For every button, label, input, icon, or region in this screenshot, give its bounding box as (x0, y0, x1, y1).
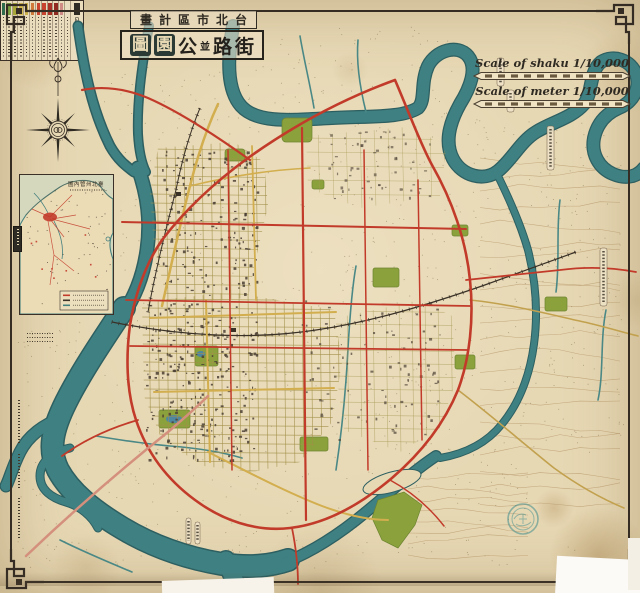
paper-edge-shadow (0, 572, 640, 586)
title-char: 園 (154, 34, 175, 56)
title-char: 路 (213, 32, 232, 59)
title-char: 公 (178, 32, 197, 59)
fret-corner-top-left (7, 5, 44, 44)
colophon-microtext (13, 400, 25, 550)
scale-bar (472, 71, 632, 81)
scale-bar-label: Scale of shaku 1/10,000 (468, 56, 636, 70)
scale-bars: Scale of shaku 1/10,000Scale of meter 1/… (468, 56, 636, 114)
scale-bar (472, 99, 632, 109)
compass-rose-icon (24, 56, 92, 172)
inset-mini-legend (60, 291, 108, 310)
title-char: 圖 (130, 34, 151, 56)
station-block (176, 192, 181, 196)
title-char: 街 (235, 32, 254, 59)
title-char: 並 (200, 38, 210, 53)
colophon-line (18, 400, 20, 444)
map-sheet: 畫計區市北台 圖園公並路街 Scale of shaku 1/10,000Sca… (0, 0, 640, 593)
map-title-series: 畫計區市北台 (130, 10, 257, 29)
colophon-line (18, 454, 20, 488)
street-grid-northeast (304, 124, 448, 210)
inset-islet (106, 237, 110, 241)
inset-regional-map: 圖內管州北臺 (19, 174, 114, 315)
paper-tear (162, 577, 274, 593)
scale-bar-label: Scale of meter 1/10,000 (468, 84, 636, 98)
inset-side-label (13, 226, 22, 252)
inset-caption-microtext (27, 330, 53, 346)
colophon-line (18, 498, 20, 538)
fret-corner-top-right (596, 5, 633, 44)
inset-title: 圖內管州北臺 (68, 180, 104, 188)
map-title-main: 圖園公並路街 (120, 30, 264, 60)
collection-stamp (504, 500, 542, 538)
paper-tear (628, 538, 640, 590)
